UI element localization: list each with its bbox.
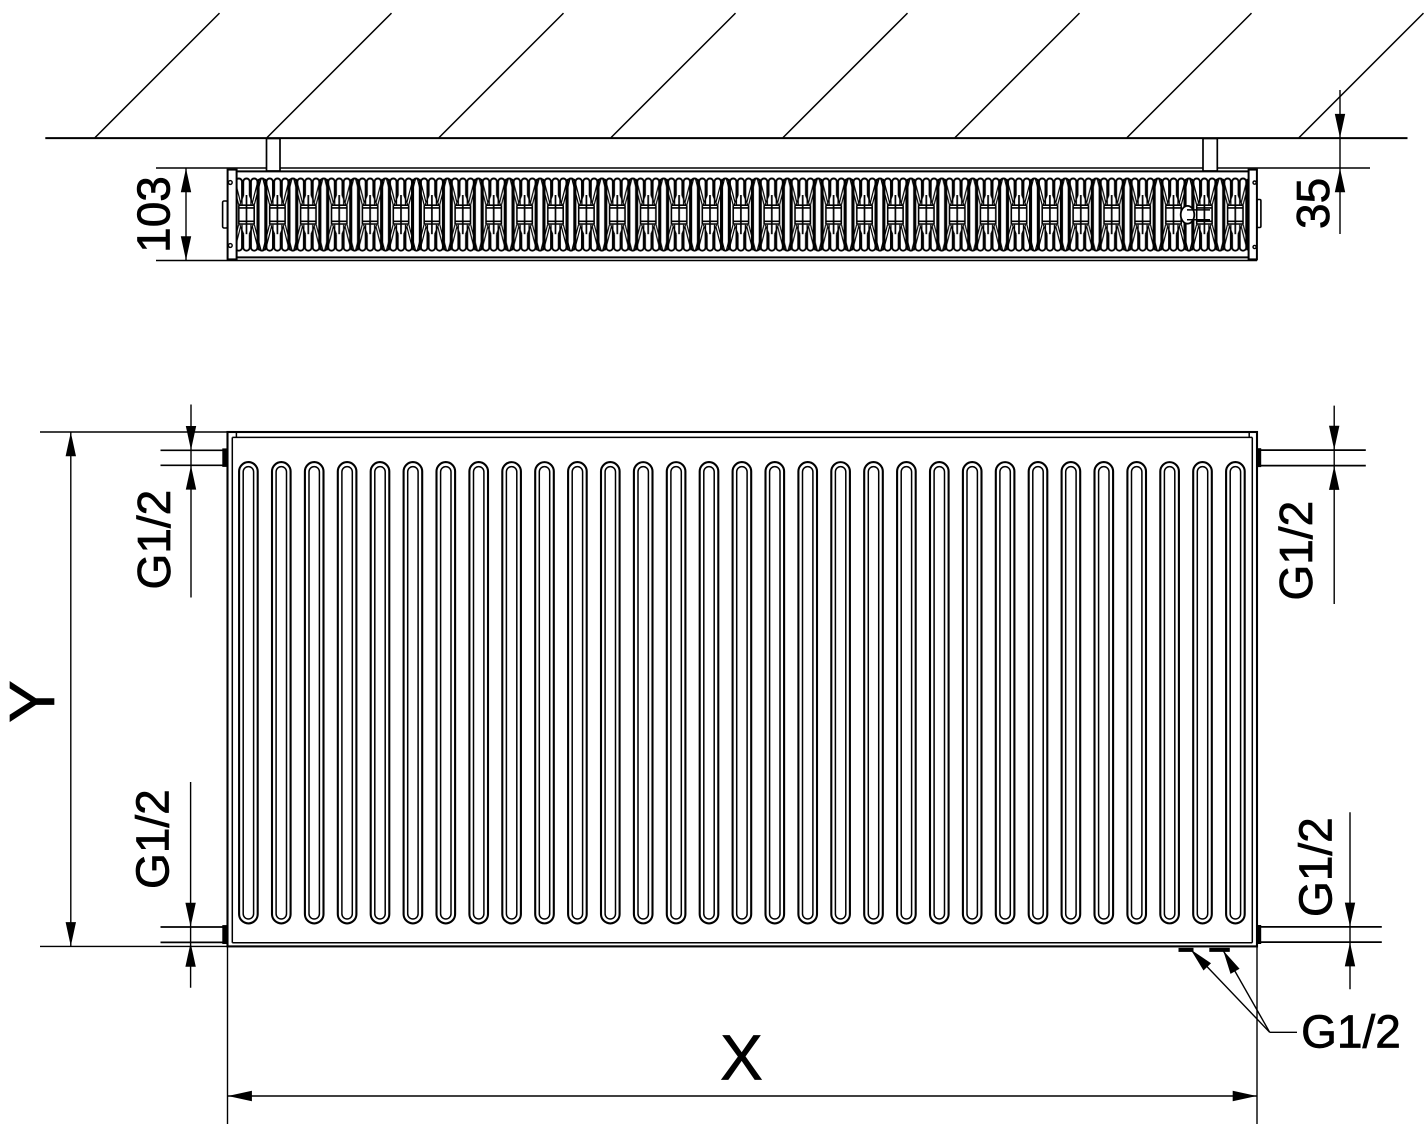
svg-text:G1/2: G1/2 (1301, 1006, 1401, 1058)
svg-text:G1/2: G1/2 (128, 490, 180, 590)
svg-text:35: 35 (1287, 178, 1339, 229)
svg-text:G1/2: G1/2 (126, 789, 178, 889)
svg-text:103: 103 (128, 176, 180, 253)
svg-text:Y: Y (0, 680, 68, 723)
svg-text:X: X (720, 1022, 763, 1094)
svg-text:G1/2: G1/2 (1289, 817, 1341, 917)
svg-text:G1/2: G1/2 (1270, 501, 1322, 601)
